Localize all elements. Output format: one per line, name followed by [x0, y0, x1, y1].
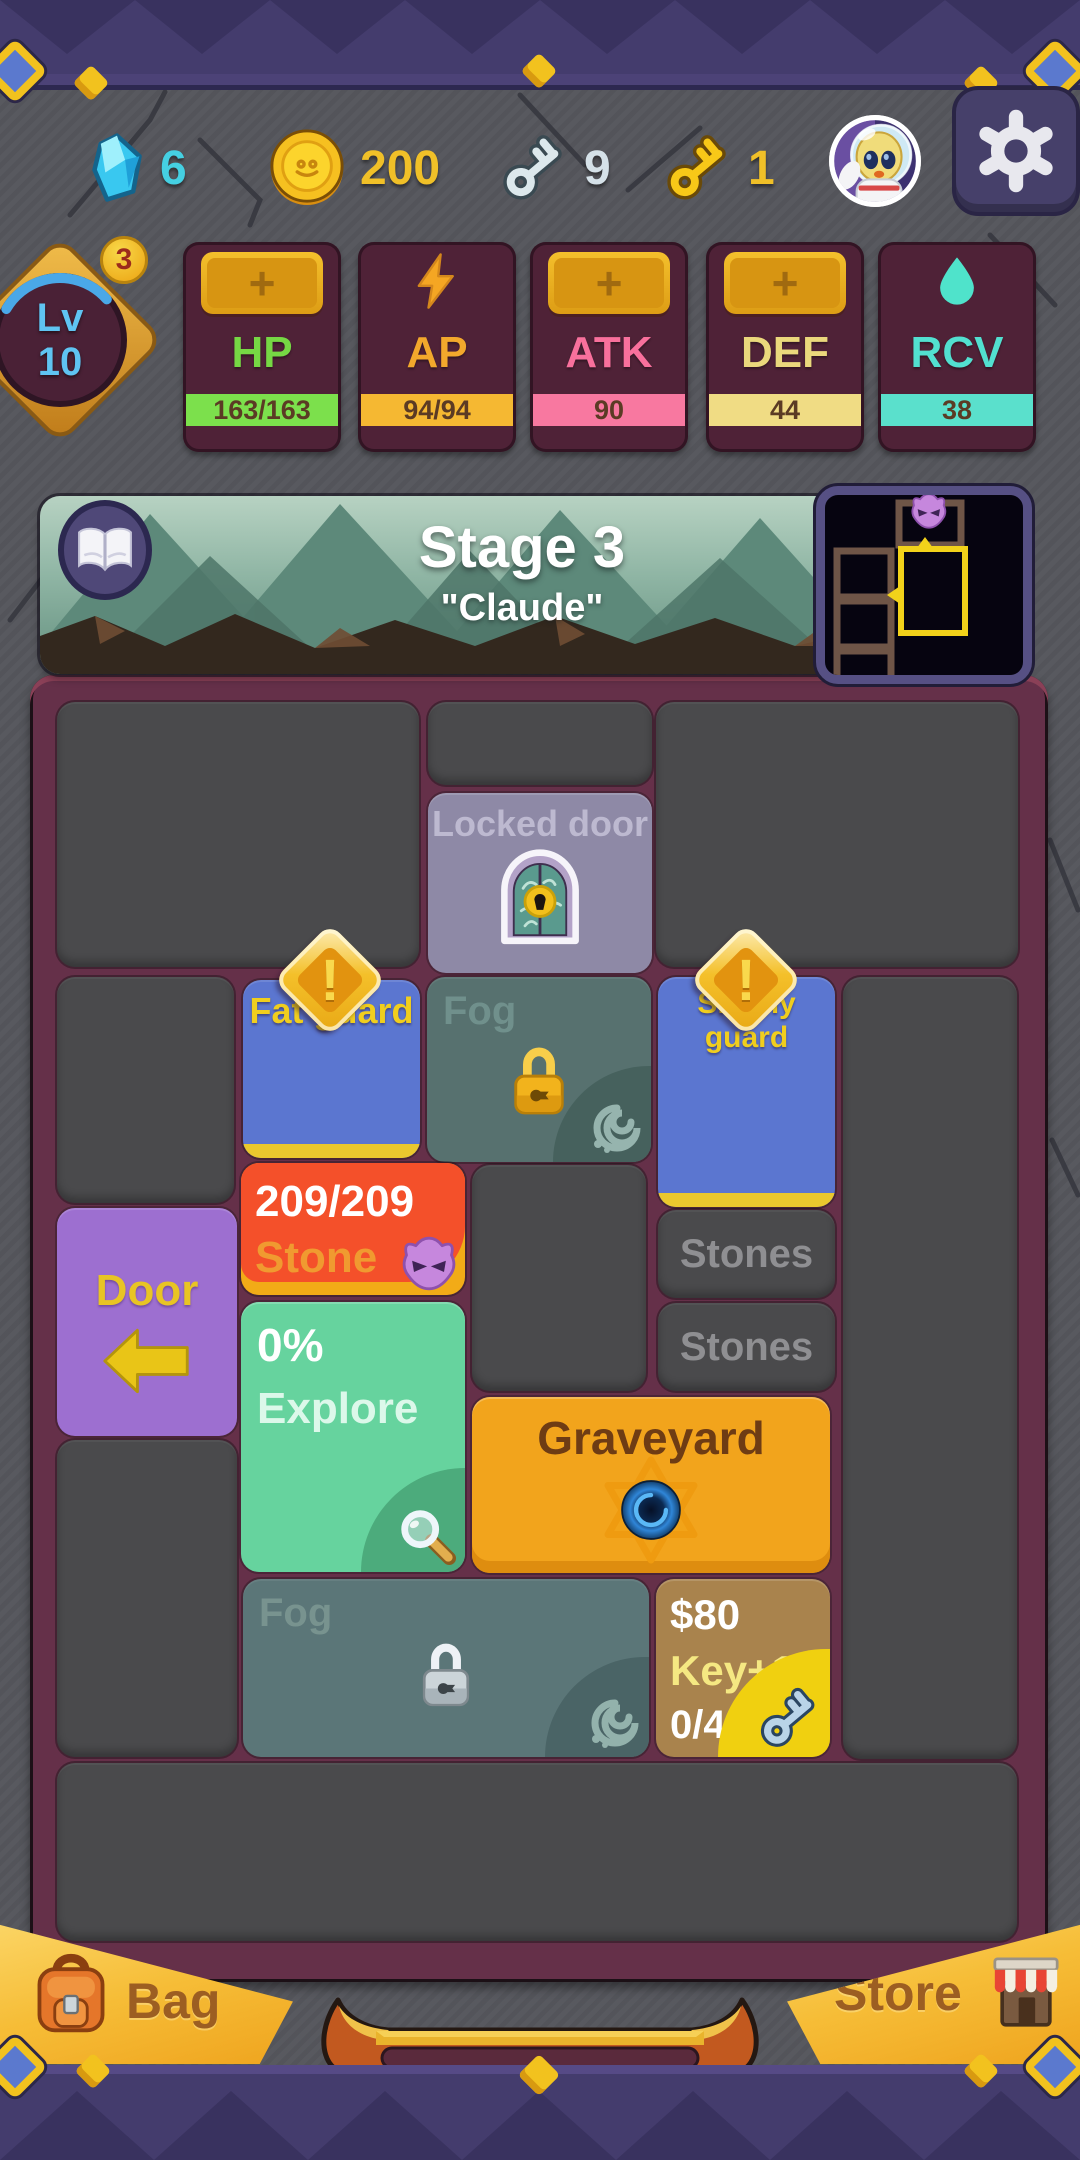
room-explore[interactable]: 0% Explore — [241, 1302, 465, 1572]
storefront-icon — [982, 1946, 1070, 2034]
level-notification-badge: 3 — [100, 236, 148, 284]
level-prefix: Lv — [37, 296, 84, 340]
room-graveyard[interactable]: Graveyard — [472, 1397, 830, 1573]
locked-door-label: Locked door — [428, 803, 652, 845]
settings-button[interactable] — [956, 90, 1076, 212]
exclamation-mark: ! — [260, 910, 400, 1050]
exclamation-mark: ! — [676, 910, 816, 1050]
plus-icon: + — [548, 252, 670, 314]
room-stone[interactable]: 209/209 Stone — [241, 1163, 465, 1295]
room-unexplored — [57, 1440, 237, 1757]
room-door[interactable]: Door — [57, 1208, 237, 1436]
minimap[interactable] — [816, 486, 1032, 684]
fog-label: Fog — [443, 989, 516, 1034]
coin-counter: 200 — [268, 126, 440, 210]
gold-key-counter: 1 — [662, 126, 775, 210]
backpack-icon — [28, 1948, 114, 2040]
explore-label: Explore — [257, 1384, 418, 1434]
door-label: Door — [57, 1266, 237, 1316]
portal-icon — [594, 1453, 708, 1567]
gem-count: 6 — [160, 141, 187, 196]
atk-plus-button[interactable]: + — [548, 252, 670, 314]
swirl-icon — [587, 1100, 643, 1156]
atk-value: 90 — [533, 394, 685, 426]
bag-label: Bag — [126, 1972, 220, 2030]
warning-icon: ! — [260, 910, 400, 1050]
minimap-rooms — [825, 495, 1023, 675]
demon-icon — [399, 1236, 459, 1291]
hp-value: 163/163 — [186, 394, 338, 426]
guard-strip — [658, 1193, 835, 1207]
atk-label: ATK — [530, 328, 688, 378]
silver-lock-icon — [417, 1635, 475, 1713]
drop-icon — [930, 252, 984, 310]
gold-lock-icon — [508, 1039, 570, 1121]
stones-label: Stones — [658, 1303, 835, 1391]
room-key-reward[interactable]: $80 Key+1 0/4 — [656, 1579, 830, 1757]
swirl-icon — [585, 1695, 641, 1751]
stage-banner: Stage 3 "Claude" — [40, 496, 884, 674]
game-screen: 6 200 9 1 — [0, 0, 1080, 2160]
locked-door-icon — [495, 841, 585, 945]
ap-label: AP — [358, 328, 516, 378]
plus-icon: + — [201, 252, 323, 314]
room-fog-upper[interactable]: Fog — [427, 977, 651, 1162]
hp-plus-button[interactable]: + — [201, 252, 323, 314]
room-stones-2[interactable]: Stones — [658, 1303, 835, 1391]
journal-button[interactable] — [58, 500, 152, 600]
key-room-progress: 0/4 — [670, 1703, 726, 1748]
stones-label: Stones — [658, 1210, 835, 1298]
silver-key-icon — [498, 132, 570, 204]
magnifier-icon — [395, 1504, 457, 1566]
key-icon — [756, 1685, 822, 1751]
gold-key-count: 1 — [748, 141, 775, 196]
swirl-corner — [545, 1657, 649, 1757]
gold-key-icon — [662, 132, 734, 204]
stone-hp: 209/209 — [255, 1177, 414, 1227]
level-emblem[interactable]: Lv 10 3 — [0, 236, 176, 466]
room-unexplored — [57, 1763, 1017, 1941]
silver-key-count: 9 — [584, 141, 611, 196]
coin-count: 200 — [360, 141, 440, 196]
stage-title: Stage 3 — [160, 514, 884, 581]
arrow-left-icon — [101, 1326, 193, 1396]
stage-subtitle: "Claude" — [160, 587, 884, 630]
def-value: 44 — [709, 394, 861, 426]
avatar[interactable] — [828, 114, 922, 208]
stat-card-def: + DEF 44 — [706, 242, 864, 452]
room-fog-lower[interactable]: Fog — [243, 1579, 649, 1757]
dungeon-board: Locked door Fat guard Fog — [30, 675, 1048, 1982]
plus-icon: + — [724, 252, 846, 314]
level-text: Lv 10 — [0, 273, 127, 407]
rcv-label: RCV — [878, 328, 1036, 378]
hp-label: HP — [183, 328, 341, 378]
silver-key-counter: 9 — [498, 126, 611, 210]
coin-icon — [268, 129, 346, 207]
room-unexplored — [428, 702, 652, 785]
room-locked-door[interactable]: Locked door — [428, 793, 652, 973]
book-icon — [76, 526, 134, 574]
gem-icon — [88, 132, 146, 204]
level-value: 10 — [38, 340, 83, 384]
stat-card-atk: + ATK 90 — [530, 242, 688, 452]
minimap-demon-icon — [912, 495, 945, 528]
room-unexplored — [472, 1165, 646, 1391]
ap-value: 94/94 — [361, 394, 513, 426]
room-unexplored — [843, 977, 1017, 1759]
stat-card-hp: + HP 163/163 — [183, 242, 341, 452]
def-label: DEF — [706, 328, 864, 378]
key-room-price: $80 — [670, 1591, 740, 1639]
rcv-value: 38 — [881, 394, 1033, 426]
warning-icon: ! — [676, 910, 816, 1050]
stat-card-ap: AP 94/94 — [358, 242, 516, 452]
fog-label: Fog — [259, 1591, 332, 1636]
magnifier-corner — [361, 1468, 465, 1572]
gem-counter: 6 — [88, 126, 187, 210]
stage-heading: Stage 3 "Claude" — [160, 496, 884, 630]
gear-icon — [973, 108, 1059, 194]
explore-percent: 0% — [257, 1318, 323, 1372]
guard-strip — [243, 1144, 420, 1158]
stone-label: Stone — [255, 1233, 377, 1283]
room-unexplored — [57, 977, 234, 1203]
lightning-icon — [408, 250, 466, 312]
def-plus-button[interactable]: + — [724, 252, 846, 314]
stat-card-rcv: RCV 38 — [878, 242, 1036, 452]
room-stones-1[interactable]: Stones — [658, 1210, 835, 1298]
